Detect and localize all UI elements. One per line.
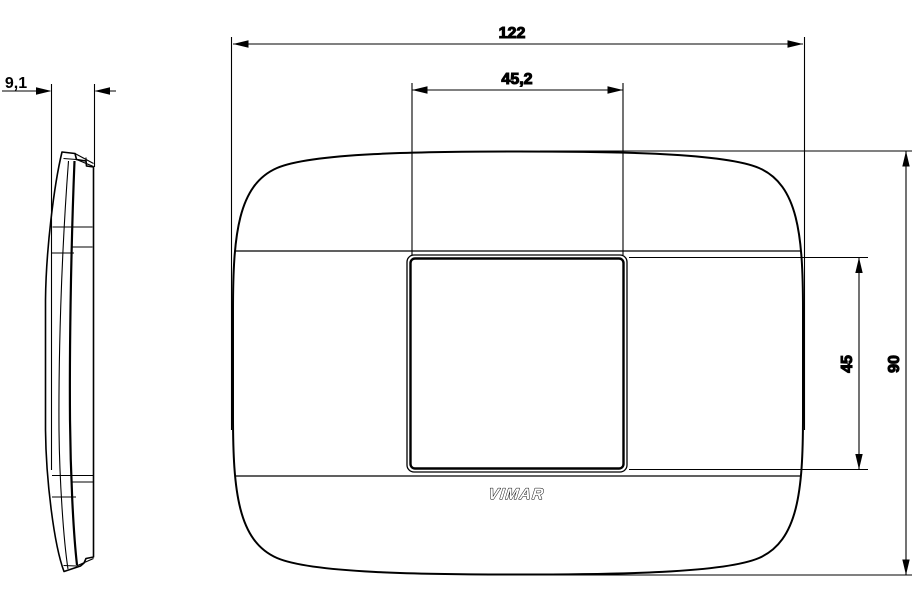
- arrow-left-icon: [233, 40, 249, 47]
- side-bottom-rim-line: [64, 566, 77, 567]
- side-thickness-label: 9,1: [5, 75, 27, 92]
- side-face-inner-edge-thin: [59, 161, 69, 569]
- arrow-right-icon: [608, 86, 624, 93]
- side-face-inner-edge-thick: [70, 161, 77, 565]
- front-view: VIMAR: [233, 152, 803, 575]
- side-top-rim-line: [64, 159, 77, 160]
- side-top-bevel-upper: [75, 154, 94, 164]
- technical-drawing-canvas: 9,1 VIMAR 122 45,2 4: [0, 0, 913, 600]
- arrow-down-icon: [902, 560, 909, 576]
- dimension-overall-height: 90: [540, 151, 912, 575]
- overall-height-label: 90: [886, 355, 903, 373]
- brand-logo: VIMAR: [488, 486, 546, 503]
- arrow-up-icon: [902, 151, 909, 167]
- arrow-left-icon: [412, 86, 428, 93]
- opening-width-label: 45,2: [501, 71, 532, 88]
- overall-width-label: 122: [499, 25, 526, 42]
- opening-height-label: 45: [839, 355, 856, 373]
- opening-inner-contour: [411, 259, 624, 469]
- arrow-down-icon: [855, 454, 862, 470]
- plate-outline: [233, 152, 803, 575]
- arrow-right-icon: [788, 40, 804, 47]
- arrow-right-icon: [36, 87, 52, 94]
- opening-outer-contour: [407, 255, 627, 472]
- arrow-left-icon: [95, 87, 111, 94]
- dimension-opening-width: 45,2: [412, 71, 623, 255]
- plate-dimension-drawing: 9,1 VIMAR 122 45,2 4: [0, 0, 913, 600]
- arrow-up-icon: [855, 258, 862, 274]
- side-view: 9,1: [2, 75, 116, 572]
- dimension-opening-height: 45: [629, 258, 868, 470]
